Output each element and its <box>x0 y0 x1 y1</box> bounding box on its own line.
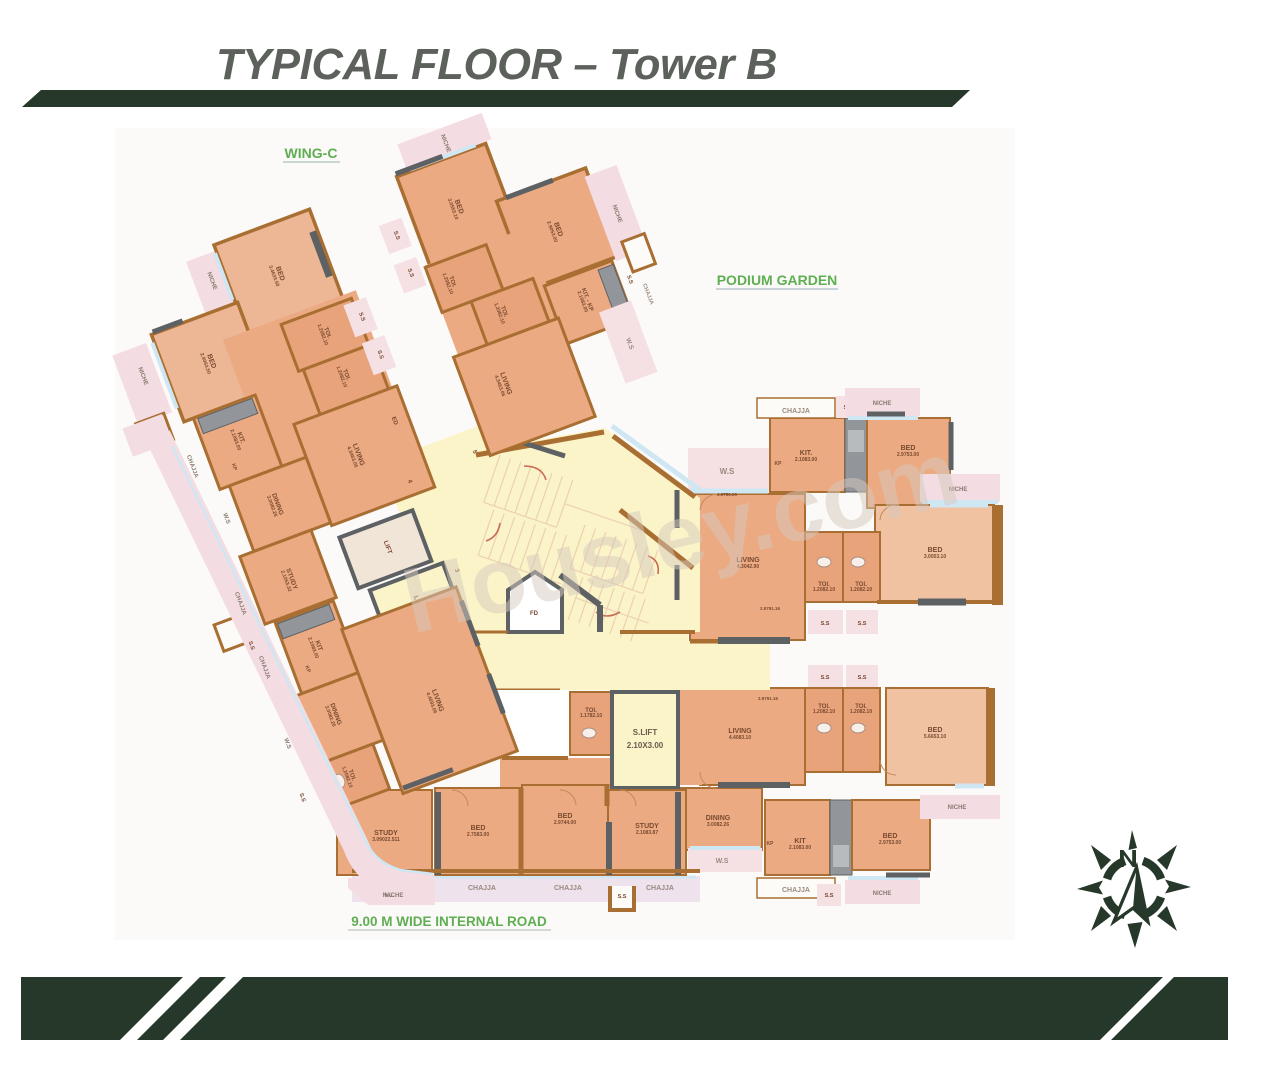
svg-text:TYPICAL FLOOR – Tower B: TYPICAL FLOOR – Tower B <box>216 41 777 89</box>
svg-text:STUDY: STUDY <box>374 830 398 837</box>
svg-text:2.7583.00: 2.7583.00 <box>467 832 489 838</box>
svg-text:S.S: S.S <box>821 621 830 627</box>
svg-text:CHAJJA: CHAJJA <box>468 885 496 892</box>
svg-text:9.00 M WIDE INTERNAL ROAD: 9.00 M WIDE INTERNAL ROAD <box>351 914 547 929</box>
svg-text:STUDY: STUDY <box>635 823 659 830</box>
svg-text:LIVING: LIVING <box>728 728 752 735</box>
svg-text:DINING: DINING <box>706 815 731 822</box>
svg-text:1.2082.10: 1.2082.10 <box>850 709 872 715</box>
svg-text:BED: BED <box>928 547 943 554</box>
svg-text:3.0053.10: 3.0053.10 <box>924 554 946 560</box>
svg-text:NICHE: NICHE <box>385 893 404 899</box>
svg-text:1.2082.10: 1.2082.10 <box>813 587 835 593</box>
svg-text:1.2082.10: 1.2082.10 <box>850 587 872 593</box>
svg-text:CHAJJA: CHAJJA <box>782 408 810 415</box>
svg-text:2.9791.16: 2.9791.16 <box>758 696 779 701</box>
svg-text:S.S: S.S <box>618 894 627 900</box>
svg-text:1.2082.10: 1.2082.10 <box>813 709 835 715</box>
svg-text:CHAJJA: CHAJJA <box>782 887 810 894</box>
svg-text:PODIUM GARDEN: PODIUM GARDEN <box>717 272 838 288</box>
svg-text:CHAJJA: CHAJJA <box>554 885 582 892</box>
svg-text:S.S: S.S <box>825 893 834 899</box>
svg-text:CHAJJA: CHAJJA <box>646 885 674 892</box>
svg-text:2.9791.16: 2.9791.16 <box>760 606 781 611</box>
svg-text:5.6653.10: 5.6653.10 <box>924 734 946 740</box>
svg-text:S.S: S.S <box>858 675 867 681</box>
svg-text:S.S: S.S <box>821 675 830 681</box>
svg-text:4.4083.10: 4.4083.10 <box>729 735 751 741</box>
svg-text:2.10X3.00: 2.10X3.00 <box>627 741 664 750</box>
svg-text:3.0082.26: 3.0082.26 <box>707 822 729 828</box>
svg-text:KIT: KIT <box>794 838 806 845</box>
svg-text:2.9753.00: 2.9753.00 <box>879 840 901 846</box>
svg-text:2.1083.00: 2.1083.00 <box>789 845 811 851</box>
svg-text:KP: KP <box>767 841 775 847</box>
svg-text:BED: BED <box>883 833 898 840</box>
svg-text:WING-C: WING-C <box>285 145 338 161</box>
svg-text:1.1782.10: 1.1782.10 <box>580 713 602 719</box>
svg-text:BED: BED <box>928 727 943 734</box>
svg-text:BED: BED <box>558 813 573 820</box>
svg-text:2.1083.87: 2.1083.87 <box>636 830 658 836</box>
svg-text:3.09022.511: 3.09022.511 <box>372 837 400 843</box>
svg-text:2.9744.00: 2.9744.00 <box>554 820 576 826</box>
svg-text:BED: BED <box>471 825 486 832</box>
svg-text:S.LIFT: S.LIFT <box>633 728 658 737</box>
svg-text:NICHE: NICHE <box>873 401 892 407</box>
svg-text:W.S: W.S <box>716 858 729 865</box>
svg-text:NICHE: NICHE <box>873 891 892 897</box>
svg-text:S.S: S.S <box>858 621 867 627</box>
svg-text:NICHE: NICHE <box>948 805 967 811</box>
